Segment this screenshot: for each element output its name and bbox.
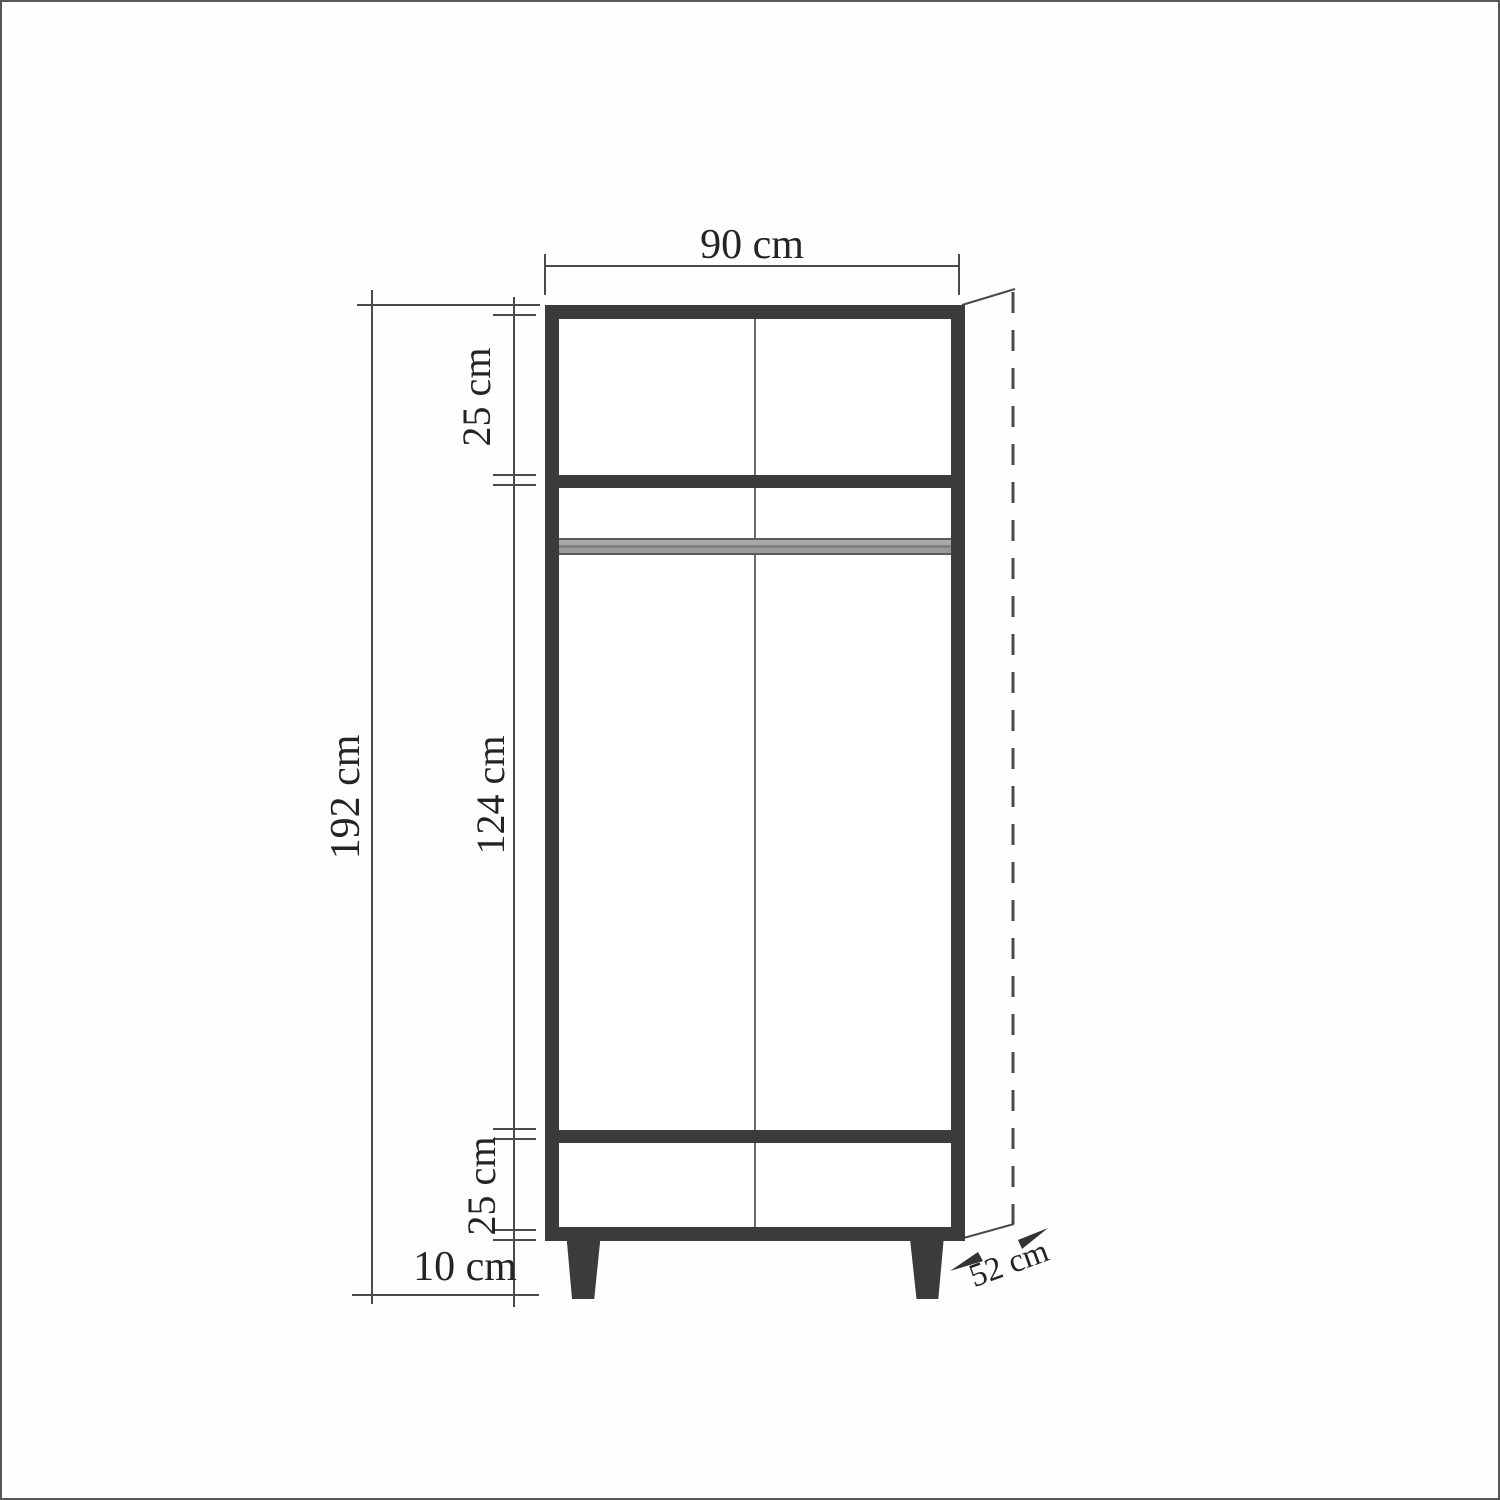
leg-height-dimension-label: 10 cm <box>365 1244 565 1290</box>
main-doors <box>559 555 951 1130</box>
depth-diagonal-bottom <box>960 1224 1014 1239</box>
door-divider-line <box>754 488 756 538</box>
upper-gap <box>559 488 951 538</box>
top-section-dimension-label: 25 cm <box>456 307 498 487</box>
middle-section-dimension-label: 124 cm <box>470 685 512 905</box>
top-cupboard-doors <box>559 319 951 475</box>
door-divider-line <box>754 555 756 1130</box>
depth-diagonal-top <box>962 289 1015 305</box>
height-dimension-label: 192 cm <box>323 687 369 907</box>
door-divider-line <box>754 319 756 475</box>
drawer-shelf-panel <box>559 1130 951 1143</box>
wardrobe-body <box>545 305 965 1241</box>
drawer-divider-line <box>754 1143 756 1227</box>
wardrobe-technical-drawing: 90 cm 192 cm 25 cm 124 cm 25 cm 10 cm 52… <box>0 0 1500 1500</box>
shelf-panel <box>559 475 951 488</box>
hanging-rod <box>559 538 951 555</box>
width-dimension-label: 90 cm <box>652 222 852 268</box>
drawer-front <box>559 1143 951 1227</box>
